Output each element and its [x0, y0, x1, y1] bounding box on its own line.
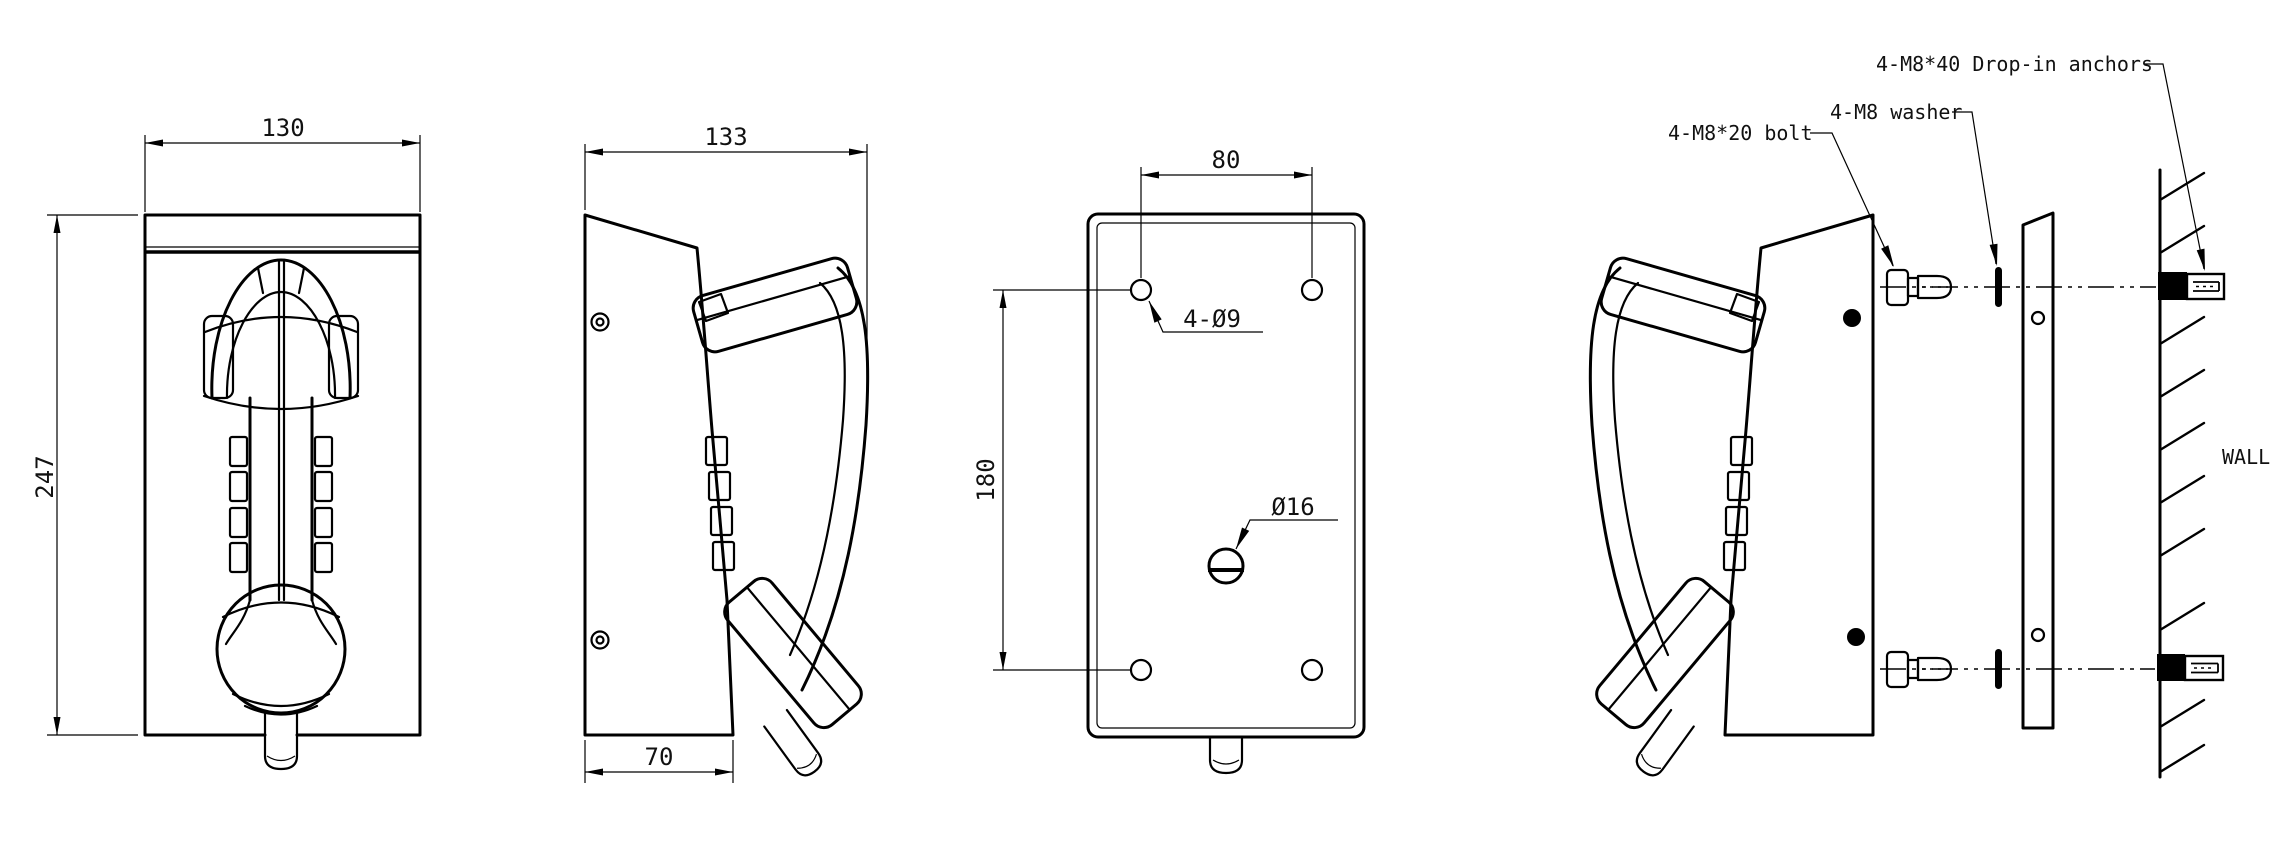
handset-mouthpiece-profile — [719, 573, 866, 733]
handle-flare — [226, 600, 336, 644]
dim-height-value: 247 — [31, 455, 59, 498]
keypad-button — [230, 437, 247, 466]
cable-gland-profile — [764, 710, 825, 780]
handle-seam — [279, 262, 284, 600]
keypad-button — [315, 508, 332, 537]
cable-hole-label: Ø16 — [1271, 493, 1314, 521]
anchors-label: 4-M8*40 Drop-in anchors — [1876, 52, 2153, 76]
dim-arrow-right — [1294, 172, 1312, 179]
earpiece-dome-inner — [227, 292, 335, 398]
keypad-button — [230, 543, 247, 572]
dim-depth-value: 133 — [704, 123, 747, 151]
washer-lower — [1995, 649, 2002, 689]
dim-hole-spacing-vertical: 180 — [972, 290, 1130, 670]
plate-hole-lower — [2032, 629, 2044, 641]
mouthpiece-cup — [217, 585, 345, 713]
dim-arrow-top — [1000, 290, 1007, 308]
dim-hole-spacing-horizontal-value: 80 — [1212, 146, 1241, 174]
front-view: 130 247 — [31, 114, 420, 769]
technical-drawing-canvas: 130 247 — [0, 0, 2279, 841]
washer-upper — [1995, 267, 2002, 307]
dim-arrow-left — [585, 769, 603, 776]
dim-base-depth-value: 70 — [645, 743, 674, 771]
dim-arrow-left — [1141, 172, 1159, 179]
cable-entry-hole — [1209, 549, 1243, 583]
screw-head — [592, 314, 609, 331]
cable-hole-callout: Ø16 — [1236, 493, 1338, 549]
mounting-plate-strip — [2023, 213, 2053, 728]
cable-gland-bottom-arc — [267, 756, 295, 761]
dim-arrow-right — [849, 149, 867, 156]
mounting-hole — [1131, 660, 1151, 680]
dim-width: 130 — [145, 114, 420, 212]
dim-width-value: 130 — [261, 114, 304, 142]
mouthpiece-rim — [223, 603, 339, 618]
washer-label: 4-M8 washer — [1830, 100, 1962, 124]
plate-hole-upper — [2032, 312, 2044, 324]
dim-hole-spacing-horizontal: 80 — [1141, 146, 1312, 278]
mounting-holes-label: 4-Ø9 — [1183, 305, 1241, 333]
anchors-callout: 4-M8*40 Drop-in anchors — [1876, 52, 2205, 271]
drop-in-anchor-upper — [2158, 272, 2224, 300]
keypad-button — [315, 543, 332, 572]
side-view: 133 70 — [585, 123, 868, 783]
dim-arrow-bottom — [1000, 652, 1007, 670]
bolt-callout: 4-M8*20 bolt — [1668, 121, 1894, 267]
mounting-hole — [1302, 280, 1322, 300]
handle-sides — [250, 398, 312, 600]
mounting-holes-callout: 4-Ø9 — [1149, 301, 1263, 333]
installation-view: WALL 4-M8*20 bolt 4-M8 washer — [1590, 52, 2270, 780]
phone-profile-mirrored — [1590, 215, 1873, 780]
leader-arrow — [2197, 249, 2205, 271]
dim-height: 247 — [31, 215, 138, 735]
cradle-arc-upper — [205, 317, 357, 332]
wall-hatching — [2160, 173, 2204, 772]
mounting-hole — [1131, 280, 1151, 300]
bolt-label: 4-M8*20 bolt — [1668, 121, 1813, 145]
dim-arrow-right — [402, 140, 420, 147]
cable-gland-bottom-arc — [1213, 760, 1239, 764]
drop-in-anchor-lower — [2157, 654, 2223, 681]
phone-profile — [585, 215, 868, 780]
screw-head — [592, 632, 609, 649]
leader-arrow — [1149, 301, 1162, 323]
screw-head-center — [597, 319, 604, 326]
keypad-button — [709, 472, 730, 500]
back-plate-view: 80 180 4-Ø9 Ø16 — [972, 146, 1364, 773]
keypad-button — [230, 508, 247, 537]
dim-arrow-bottom — [54, 717, 61, 735]
dim-arrow-left — [585, 149, 603, 156]
mounting-hole — [1302, 660, 1322, 680]
handset-front — [204, 260, 358, 769]
keypad-button — [315, 437, 332, 466]
cable-gland-bottom — [1210, 737, 1242, 773]
earpiece-ticks — [258, 268, 304, 293]
leader-arrow — [1881, 245, 1894, 267]
keypad-button — [706, 437, 727, 465]
dim-arrow-left — [145, 140, 163, 147]
dim-base-depth: 70 — [585, 740, 733, 783]
wall-label: WALL — [2222, 445, 2270, 469]
leader-arrow — [1236, 528, 1249, 550]
leader-arrow — [1990, 244, 1998, 266]
handset-handle-outer — [802, 268, 868, 690]
bolt-hole-lower — [1847, 628, 1865, 646]
wall: WALL — [2160, 170, 2270, 777]
keypad-buttons — [230, 437, 332, 572]
screw-head-center — [597, 637, 604, 644]
dim-arrow-top — [54, 215, 61, 233]
bolt-hole-upper — [1843, 309, 1861, 327]
dim-arrow-right — [715, 769, 733, 776]
keypad-button — [230, 472, 247, 501]
keypad-button — [315, 472, 332, 501]
cover-screws — [592, 314, 609, 649]
dim-hole-spacing-vertical-value: 180 — [972, 458, 1000, 501]
